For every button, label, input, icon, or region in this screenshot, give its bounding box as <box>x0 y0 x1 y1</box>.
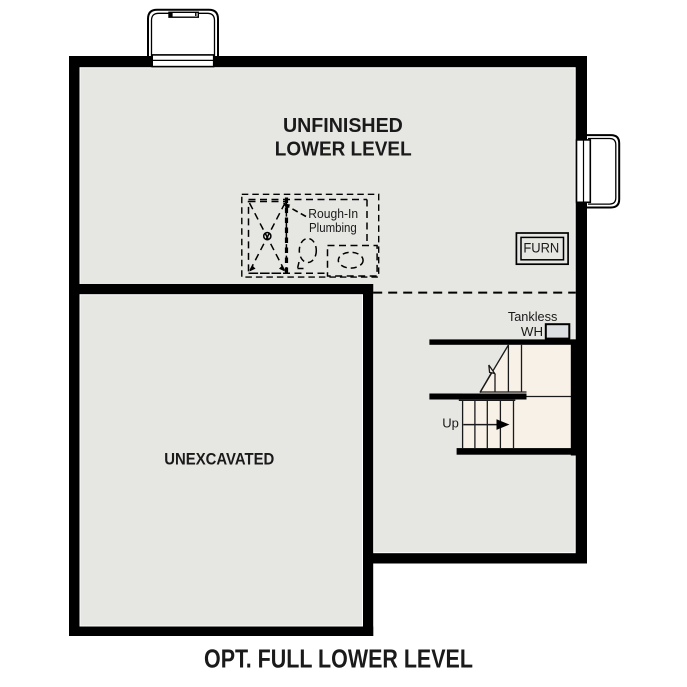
svg-text:Rough-In: Rough-In <box>308 206 358 221</box>
svg-text:Up: Up <box>442 416 459 431</box>
svg-text:Plumbing: Plumbing <box>309 220 357 235</box>
svg-text:FURN: FURN <box>523 240 559 256</box>
svg-text:OPT. FULL LOWER LEVEL: OPT. FULL LOWER LEVEL <box>204 643 473 673</box>
svg-text:UNEXCAVATED: UNEXCAVATED <box>164 451 274 469</box>
svg-text:WH: WH <box>521 324 543 339</box>
svg-text:LOWER LEVEL: LOWER LEVEL <box>275 138 412 160</box>
svg-text:UNFINISHED: UNFINISHED <box>283 115 403 137</box>
svg-text:Tankless: Tankless <box>508 309 558 324</box>
